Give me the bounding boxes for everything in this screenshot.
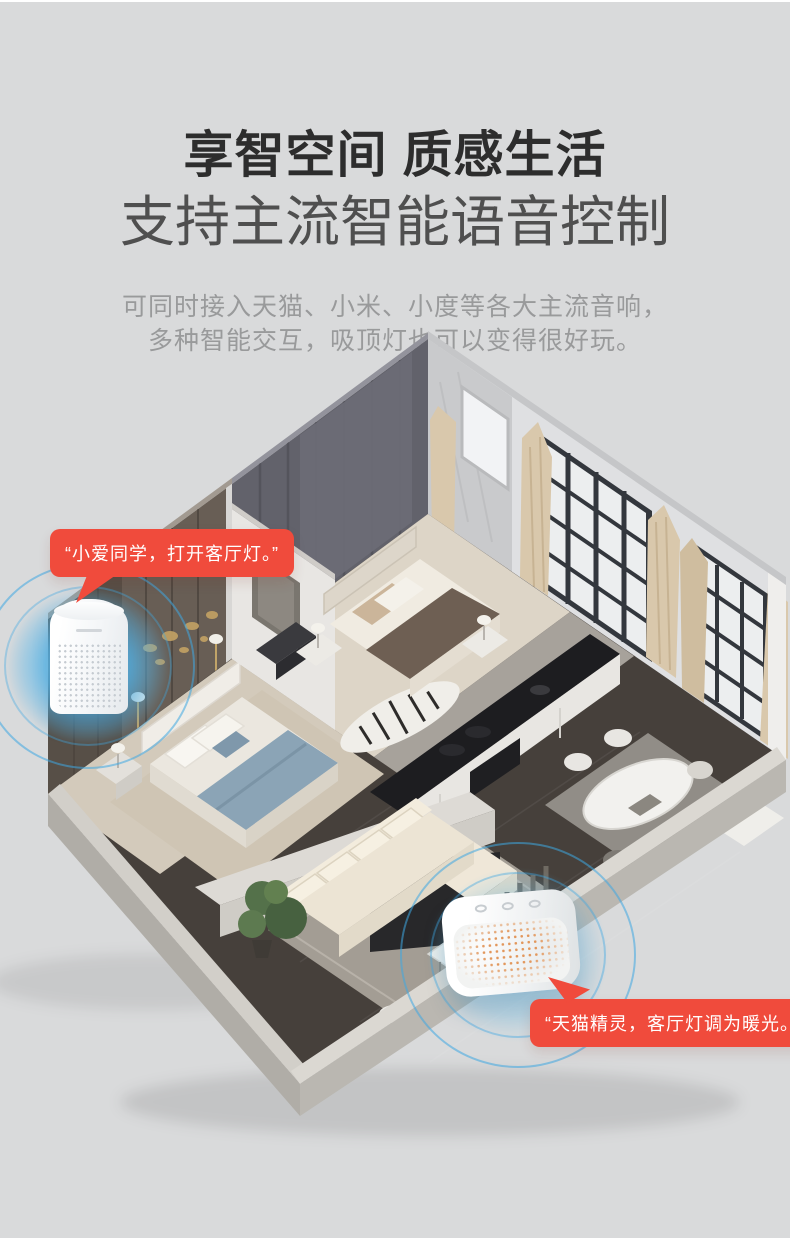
speaker-top-cap bbox=[54, 602, 124, 620]
dining-chair bbox=[564, 753, 592, 771]
genie-button bbox=[475, 904, 488, 913]
product-detail-page: 享智空间 质感生活 支持主流智能语音控制 可同时接入天猫、小米、小度等各大主流音… bbox=[0, 0, 790, 1257]
tmall-voice-bubble: “天猫精灵，客厅灯调为暖光。” bbox=[530, 999, 790, 1047]
xiaoai-voice-text: “小爱同学，打开客厅灯。” bbox=[65, 544, 279, 564]
xiaoai-smart-speaker bbox=[50, 599, 128, 714]
dining-chair bbox=[687, 761, 713, 779]
cooktop-burner bbox=[439, 744, 465, 756]
apartment-render: “小爱同学，打开客厅灯。” “天猫精灵，客厅灯调为暖光。” bbox=[0, 2, 790, 1238]
genie-button bbox=[528, 899, 541, 908]
wall-end-cap bbox=[768, 572, 786, 760]
dining-chair bbox=[604, 729, 632, 747]
speaker-brand-mark bbox=[76, 629, 102, 632]
lamp-shade bbox=[311, 623, 325, 633]
genie-button-icons bbox=[441, 896, 575, 916]
xiaoai-voice-bubble: “小爱同学，打开客厅灯。” bbox=[50, 529, 294, 577]
speaker-grille bbox=[57, 643, 121, 709]
smart-voice-section: 享智空间 质感生活 支持主流智能语音控制 可同时接入天猫、小米、小度等各大主流音… bbox=[0, 2, 790, 1238]
tmall-voice-text: “天猫精灵，客厅灯调为暖光。” bbox=[545, 1014, 790, 1034]
sink bbox=[530, 685, 550, 695]
cooktop-burner bbox=[465, 726, 491, 738]
genie-button bbox=[501, 902, 514, 911]
lamp-shade bbox=[477, 615, 491, 625]
